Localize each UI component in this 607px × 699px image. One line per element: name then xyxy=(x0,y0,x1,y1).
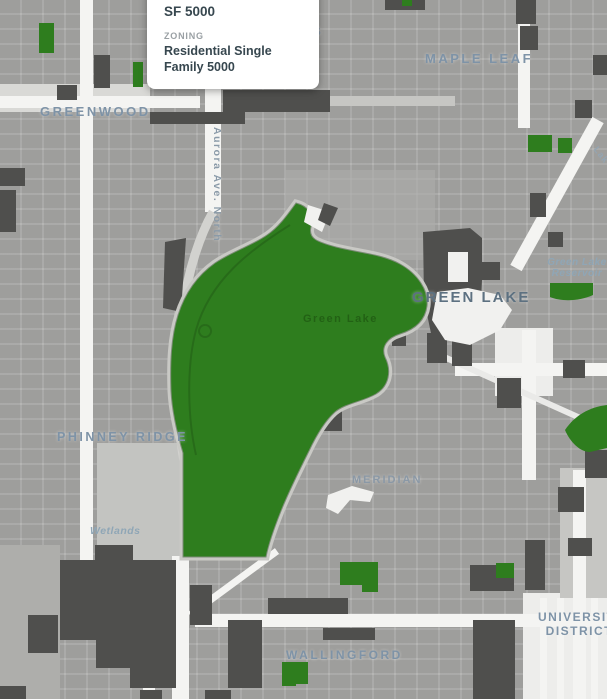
label-green-lake-reservoir: Green Lake Reservoir xyxy=(543,257,607,279)
label-meridian: MERIDIAN xyxy=(352,474,422,486)
popup-field-label: ZONING xyxy=(164,31,305,41)
map-viewport[interactable]: GS GREENWOOD MAPLE LEAF Aurora Ave. Nort… xyxy=(0,0,607,699)
label-wallingford: WALLINGFORD xyxy=(286,648,403,662)
label-university-district: UNIVERSITY DISTRICT xyxy=(538,611,607,639)
label-phinney-ridge: PHINNEY RIDGE xyxy=(57,430,188,444)
popup-field-value: Residential Single Family 5000 xyxy=(164,43,284,76)
park-meridian-playground xyxy=(340,562,378,592)
label-aurora-ave-north: Aurora Ave. North xyxy=(211,127,223,242)
label-maple-leaf: MAPLE LEAF xyxy=(425,51,533,66)
zoning-info-popup: SF 5000 ZONING Residential Single Family… xyxy=(147,0,319,89)
label-green-lake: GREEN LAKE xyxy=(412,289,530,306)
popup-zone-code: SF 5000 xyxy=(164,4,305,19)
label-greenwood: GREENWOOD xyxy=(40,104,151,119)
label-green-lake-faint: Green Lake xyxy=(303,313,378,325)
park-reservoir xyxy=(550,283,593,300)
road-roosevelt xyxy=(522,330,536,480)
label-wetlands: Wetlands xyxy=(90,525,140,537)
road-greenwood-ave xyxy=(80,0,93,560)
